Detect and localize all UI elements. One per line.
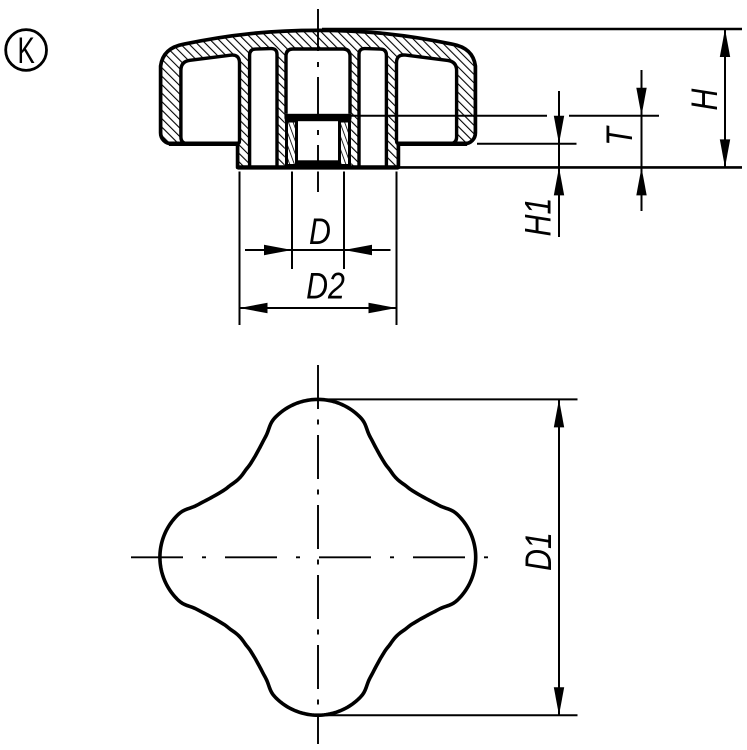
- svg-text:H1: H1: [518, 198, 560, 237]
- svg-text:H: H: [684, 88, 726, 110]
- svg-text:D2: D2: [306, 266, 345, 308]
- svg-text:K: K: [17, 30, 34, 72]
- svg-text:D: D: [309, 211, 331, 253]
- svg-text:D1: D1: [518, 532, 560, 571]
- svg-text:T: T: [599, 125, 641, 146]
